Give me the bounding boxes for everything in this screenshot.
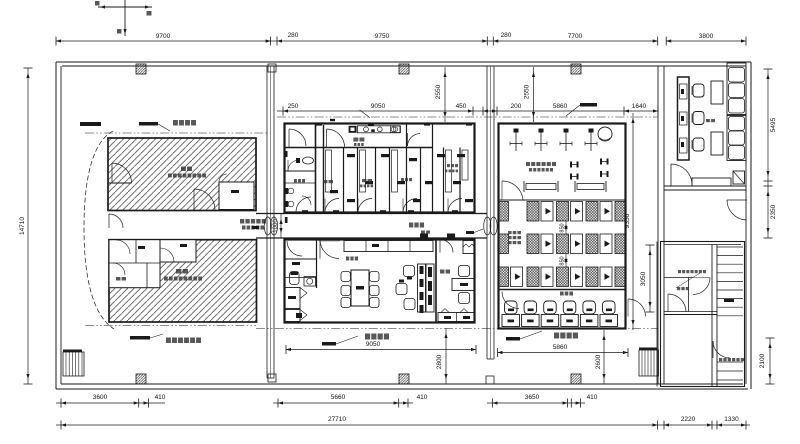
svg-text:2600: 2600 [595,354,602,369]
svg-text:850: 850 [560,256,566,265]
svg-text:850: 850 [560,223,566,232]
svg-text:2550: 2550 [435,84,442,99]
svg-text:1640: 1640 [632,103,647,110]
svg-text:200: 200 [511,103,522,110]
svg-text:3650: 3650 [525,394,540,401]
svg-text:5495: 5495 [770,117,777,132]
svg-text:2800: 2800 [436,354,443,369]
svg-text:280: 280 [288,32,299,39]
svg-text:250: 250 [288,103,299,110]
svg-text:2220: 2220 [681,416,696,423]
svg-text:1330: 1330 [724,416,739,423]
svg-text:9050: 9050 [366,341,381,348]
svg-text:27710: 27710 [328,416,346,423]
svg-text:410: 410 [155,394,166,401]
svg-text:280: 280 [501,32,512,39]
svg-text:5860: 5860 [553,103,568,110]
svg-text:410: 410 [587,394,598,401]
svg-text:9050: 9050 [371,103,386,110]
svg-text:7700: 7700 [568,33,583,40]
svg-text:5860: 5860 [553,344,568,351]
svg-text:450: 450 [456,103,467,110]
svg-text:14710: 14710 [19,217,26,235]
svg-text:5660: 5660 [331,394,346,401]
svg-text:9750: 9750 [375,33,390,40]
svg-text:2550: 2550 [524,84,531,99]
svg-text:3800: 3800 [699,33,714,40]
svg-text:2100: 2100 [759,353,766,368]
svg-text:3600: 3600 [93,394,108,401]
svg-text:9700: 9700 [156,33,171,40]
svg-text:410: 410 [417,394,428,401]
svg-text:3050: 3050 [640,271,647,286]
svg-text:2350: 2350 [770,204,777,219]
